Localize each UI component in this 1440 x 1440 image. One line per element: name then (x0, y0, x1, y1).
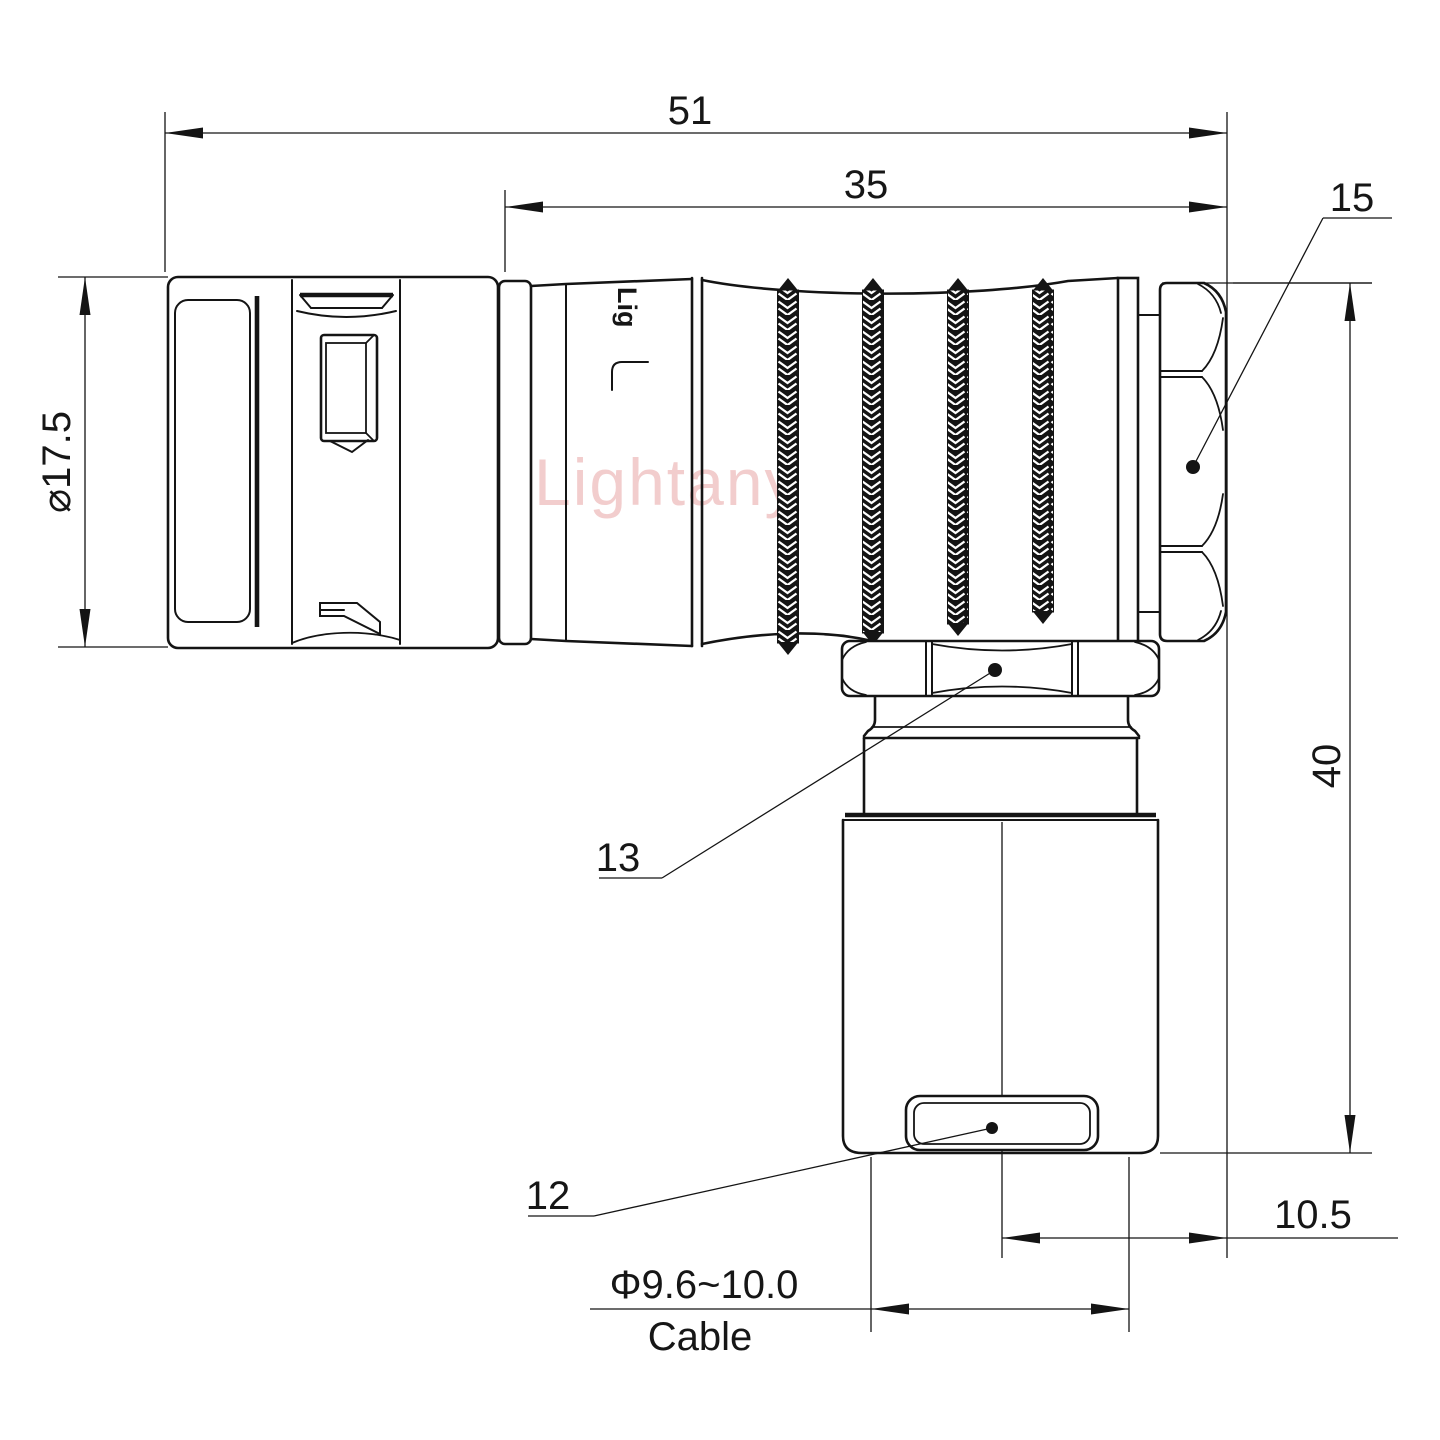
label-15: 15 (1330, 176, 1375, 220)
knurl-band (778, 290, 799, 643)
dim-35-value: 35 (844, 163, 889, 207)
dim-10-5-value: 10.5 (1274, 1193, 1352, 1237)
cable-clamp-window (906, 1096, 1098, 1150)
dimension-front-diameter: ⌀17.5 (35, 277, 168, 647)
knurl-band (863, 290, 884, 633)
dim-40-value: 40 (1305, 744, 1349, 789)
label-12: 12 (526, 1174, 571, 1218)
washer-plate (1118, 278, 1160, 648)
dim-cable-word: Cable (648, 1315, 753, 1359)
neck (864, 697, 1139, 738)
dimension-cable: Φ9.6~10.0 Cable (590, 1157, 1129, 1359)
dimension-rear-length: 35 (505, 163, 1227, 272)
dim-diameter-value: ⌀17.5 (35, 411, 79, 513)
label-13: 13 (596, 836, 641, 880)
knurl-band (948, 290, 969, 624)
technical-drawing-page: Lightany (0, 0, 1440, 1440)
key-block (321, 335, 377, 452)
brand-engraving: Lig (612, 287, 642, 328)
engraving-mark (612, 362, 648, 390)
watermark: Lightany (534, 445, 800, 519)
dim-cable-range: Φ9.6~10.0 (610, 1263, 799, 1307)
dimension-center-offset: 10.5 (1002, 1193, 1398, 1244)
front-sleeve (168, 277, 498, 648)
knurl-band (1033, 290, 1054, 612)
elbow-assembly (842, 641, 1159, 1258)
knurl-band-tip (778, 278, 799, 291)
dim-51-value: 51 (668, 89, 713, 133)
connector-drawing: Lightany (0, 0, 1440, 1440)
